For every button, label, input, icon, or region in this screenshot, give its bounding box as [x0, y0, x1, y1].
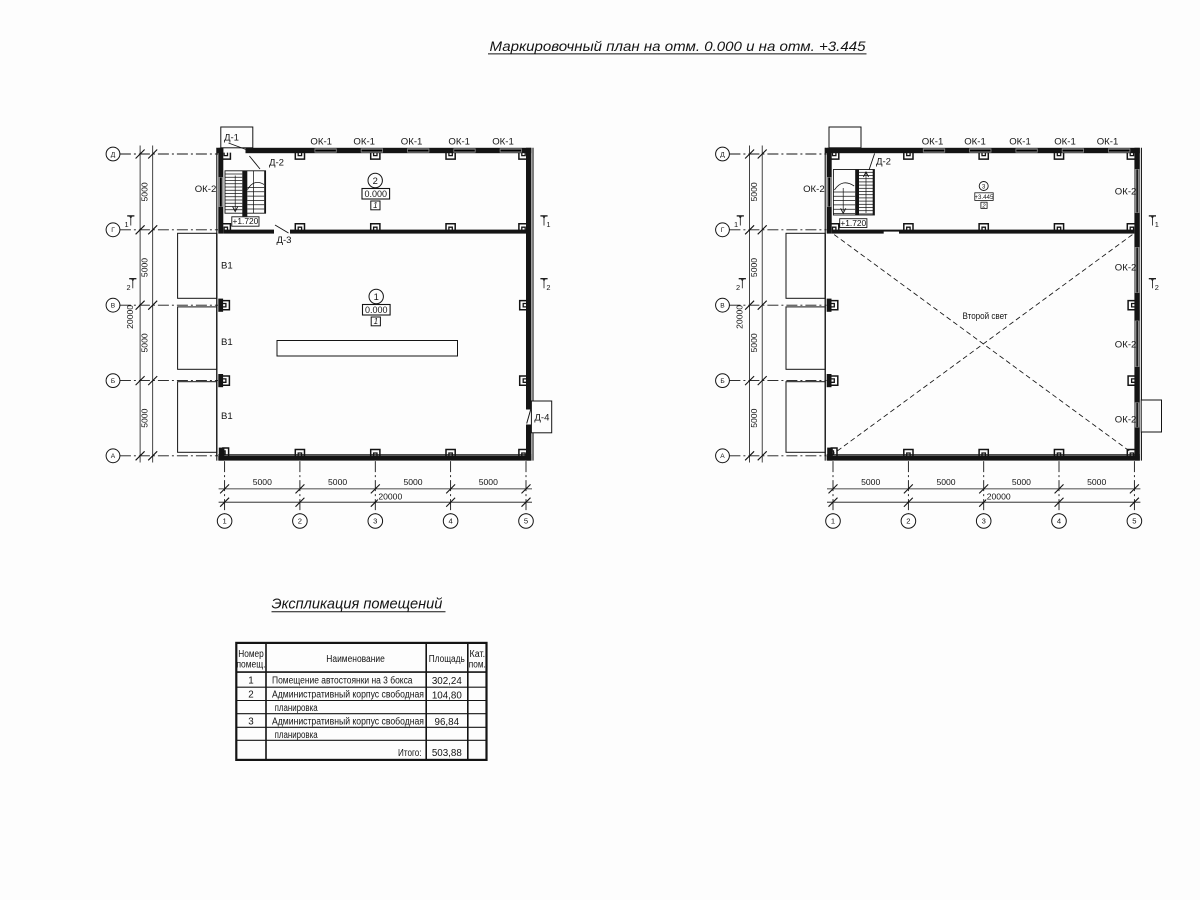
svg-text:1: 1 — [831, 517, 835, 526]
svg-text:2: 2 — [373, 175, 378, 186]
svg-text:5000: 5000 — [1012, 477, 1031, 487]
svg-text:ОК-1: ОК-1 — [1054, 137, 1076, 148]
svg-text:планировка: планировка — [275, 730, 318, 741]
svg-text:20000: 20000 — [125, 305, 135, 329]
svg-text:3: 3 — [373, 517, 377, 526]
svg-text:Г: Г — [721, 227, 725, 234]
svg-text:0.000: 0.000 — [365, 189, 388, 199]
svg-text:Д-2: Д-2 — [269, 158, 284, 169]
svg-text:5000: 5000 — [140, 333, 150, 352]
svg-text:А: А — [720, 453, 725, 460]
svg-text:2: 2 — [906, 517, 910, 526]
svg-text:В: В — [111, 303, 116, 310]
svg-text:В1: В1 — [221, 261, 233, 272]
svg-text:5: 5 — [1132, 517, 1136, 526]
svg-text:Д: Д — [111, 151, 116, 158]
svg-text:5000: 5000 — [140, 408, 150, 427]
svg-text:ОК-1: ОК-1 — [492, 137, 514, 148]
svg-text:пом.: пом. — [469, 659, 486, 670]
svg-text:2: 2 — [736, 283, 740, 292]
svg-text:планировка: планировка — [275, 703, 318, 714]
svg-text:1: 1 — [373, 201, 377, 210]
svg-text:302,24: 302,24 — [432, 676, 463, 687]
svg-text:+1.720: +1.720 — [840, 218, 866, 228]
svg-text:ОК-2: ОК-2 — [1115, 263, 1137, 274]
svg-text:2: 2 — [248, 690, 253, 701]
svg-text:1: 1 — [124, 220, 128, 229]
svg-text:Экспликация помещений: Экспликация помещений — [272, 597, 443, 613]
svg-text:+1.720: +1.720 — [232, 216, 258, 226]
svg-text:Д-2: Д-2 — [876, 157, 891, 168]
svg-text:ОК-1: ОК-1 — [353, 137, 375, 148]
svg-text:Помещение автостоянки на 3 бок: Помещение автостоянки на 3 бокса — [272, 676, 413, 687]
svg-text:20000: 20000 — [734, 305, 744, 329]
svg-text:20000: 20000 — [378, 492, 402, 502]
svg-text:Б: Б — [720, 378, 724, 385]
svg-text:5: 5 — [524, 517, 528, 526]
svg-text:5000: 5000 — [403, 477, 422, 487]
svg-text:ОК-2: ОК-2 — [1115, 187, 1137, 198]
svg-text:ОК-1: ОК-1 — [448, 137, 470, 148]
svg-text:ОК-1: ОК-1 — [401, 137, 423, 148]
svg-text:Д: Д — [720, 151, 725, 158]
svg-text:1: 1 — [1155, 220, 1159, 229]
svg-text:5000: 5000 — [749, 258, 759, 277]
svg-text:0.000: 0.000 — [365, 305, 388, 315]
svg-text:Итого:: Итого: — [398, 748, 422, 759]
svg-text:2: 2 — [126, 283, 130, 292]
svg-text:1: 1 — [734, 220, 738, 229]
svg-text:Д-1: Д-1 — [224, 133, 239, 144]
svg-text:Б: Б — [111, 378, 115, 385]
svg-text:А: А — [111, 453, 116, 460]
svg-text:5000: 5000 — [861, 477, 880, 487]
svg-text:2: 2 — [546, 283, 550, 292]
svg-text:4: 4 — [448, 517, 452, 526]
svg-text:Д-3: Д-3 — [276, 235, 291, 246]
svg-text:ОК-1: ОК-1 — [964, 137, 986, 148]
svg-text:20000: 20000 — [987, 492, 1011, 502]
svg-text:Г: Г — [111, 227, 115, 234]
svg-text:1: 1 — [248, 676, 253, 687]
svg-text:помещ.: помещ. — [237, 659, 266, 670]
svg-text:ОК-2: ОК-2 — [1115, 340, 1137, 351]
svg-text:5000: 5000 — [140, 182, 150, 201]
svg-text:2: 2 — [1155, 283, 1159, 292]
svg-text:+3.445: +3.445 — [974, 194, 994, 201]
svg-text:Второй свет: Второй свет — [963, 310, 1009, 321]
svg-text:ОК-2: ОК-2 — [1115, 415, 1137, 426]
svg-text:5000: 5000 — [749, 408, 759, 427]
svg-text:1: 1 — [374, 317, 378, 326]
svg-text:Административный корпус свобод: Административный корпус свободная — [272, 690, 424, 701]
svg-text:5000: 5000 — [1087, 477, 1106, 487]
svg-text:96,84: 96,84 — [435, 717, 460, 728]
svg-text:Административный корпус свобод: Административный корпус свободная — [272, 716, 424, 727]
svg-text:ОК-1: ОК-1 — [922, 137, 944, 148]
svg-text:104,80: 104,80 — [432, 690, 463, 701]
svg-text:Д-4: Д-4 — [534, 412, 550, 423]
svg-text:ОК-2: ОК-2 — [195, 184, 217, 195]
svg-text:ОК-1: ОК-1 — [1097, 137, 1119, 148]
svg-text:503,88: 503,88 — [432, 748, 463, 759]
svg-text:5000: 5000 — [936, 477, 955, 487]
svg-text:В1: В1 — [221, 411, 233, 422]
svg-text:ОК-2: ОК-2 — [803, 184, 825, 195]
svg-text:В: В — [720, 303, 725, 310]
svg-text:5000: 5000 — [479, 477, 498, 487]
svg-text:1: 1 — [222, 517, 226, 526]
svg-text:2: 2 — [298, 517, 302, 526]
svg-text:5000: 5000 — [328, 477, 347, 487]
svg-text:3: 3 — [982, 517, 986, 526]
svg-text:5000: 5000 — [749, 333, 759, 352]
svg-text:5000: 5000 — [749, 182, 759, 201]
svg-text:5000: 5000 — [253, 477, 272, 487]
svg-text:1: 1 — [374, 291, 379, 302]
svg-text:ОК-1: ОК-1 — [1009, 137, 1031, 148]
svg-text:5000: 5000 — [140, 258, 150, 277]
svg-text:В1: В1 — [221, 337, 233, 348]
svg-text:ОК-1: ОК-1 — [310, 137, 332, 148]
svg-text:Площадь: Площадь — [429, 654, 465, 665]
svg-text:4: 4 — [1057, 517, 1061, 526]
svg-text:Наименование: Наименование — [326, 654, 385, 665]
svg-text:3: 3 — [248, 716, 254, 727]
svg-text:1: 1 — [546, 220, 550, 229]
svg-text:Маркировочный план на отм. 0.0: Маркировочный план на отм. 0.000 и на от… — [490, 39, 866, 54]
